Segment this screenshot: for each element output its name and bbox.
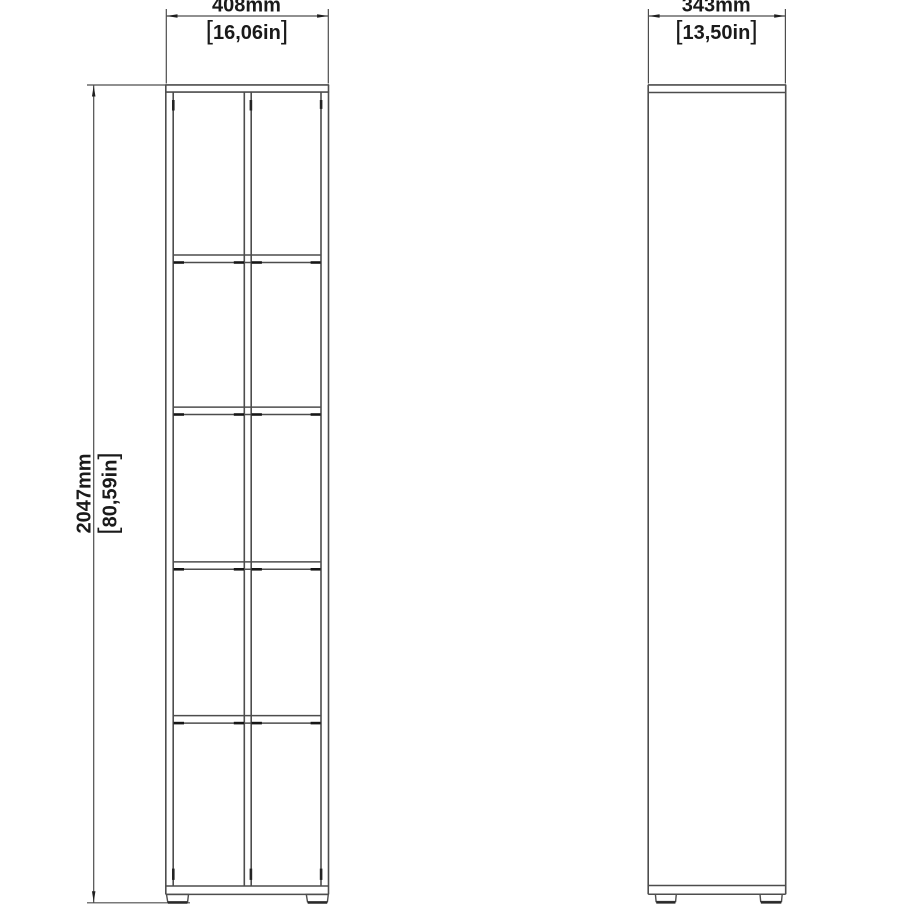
svg-text:[80,59in]: [80,59in]: [93, 452, 123, 534]
svg-text:408mm: 408mm: [212, 0, 281, 17]
svg-text:[13,50in]: [13,50in]: [675, 15, 757, 45]
svg-text:[16,06in]: [16,06in]: [206, 15, 288, 45]
svg-text:343mm: 343mm: [682, 0, 751, 17]
svg-text:2047mm: 2047mm: [74, 453, 96, 533]
